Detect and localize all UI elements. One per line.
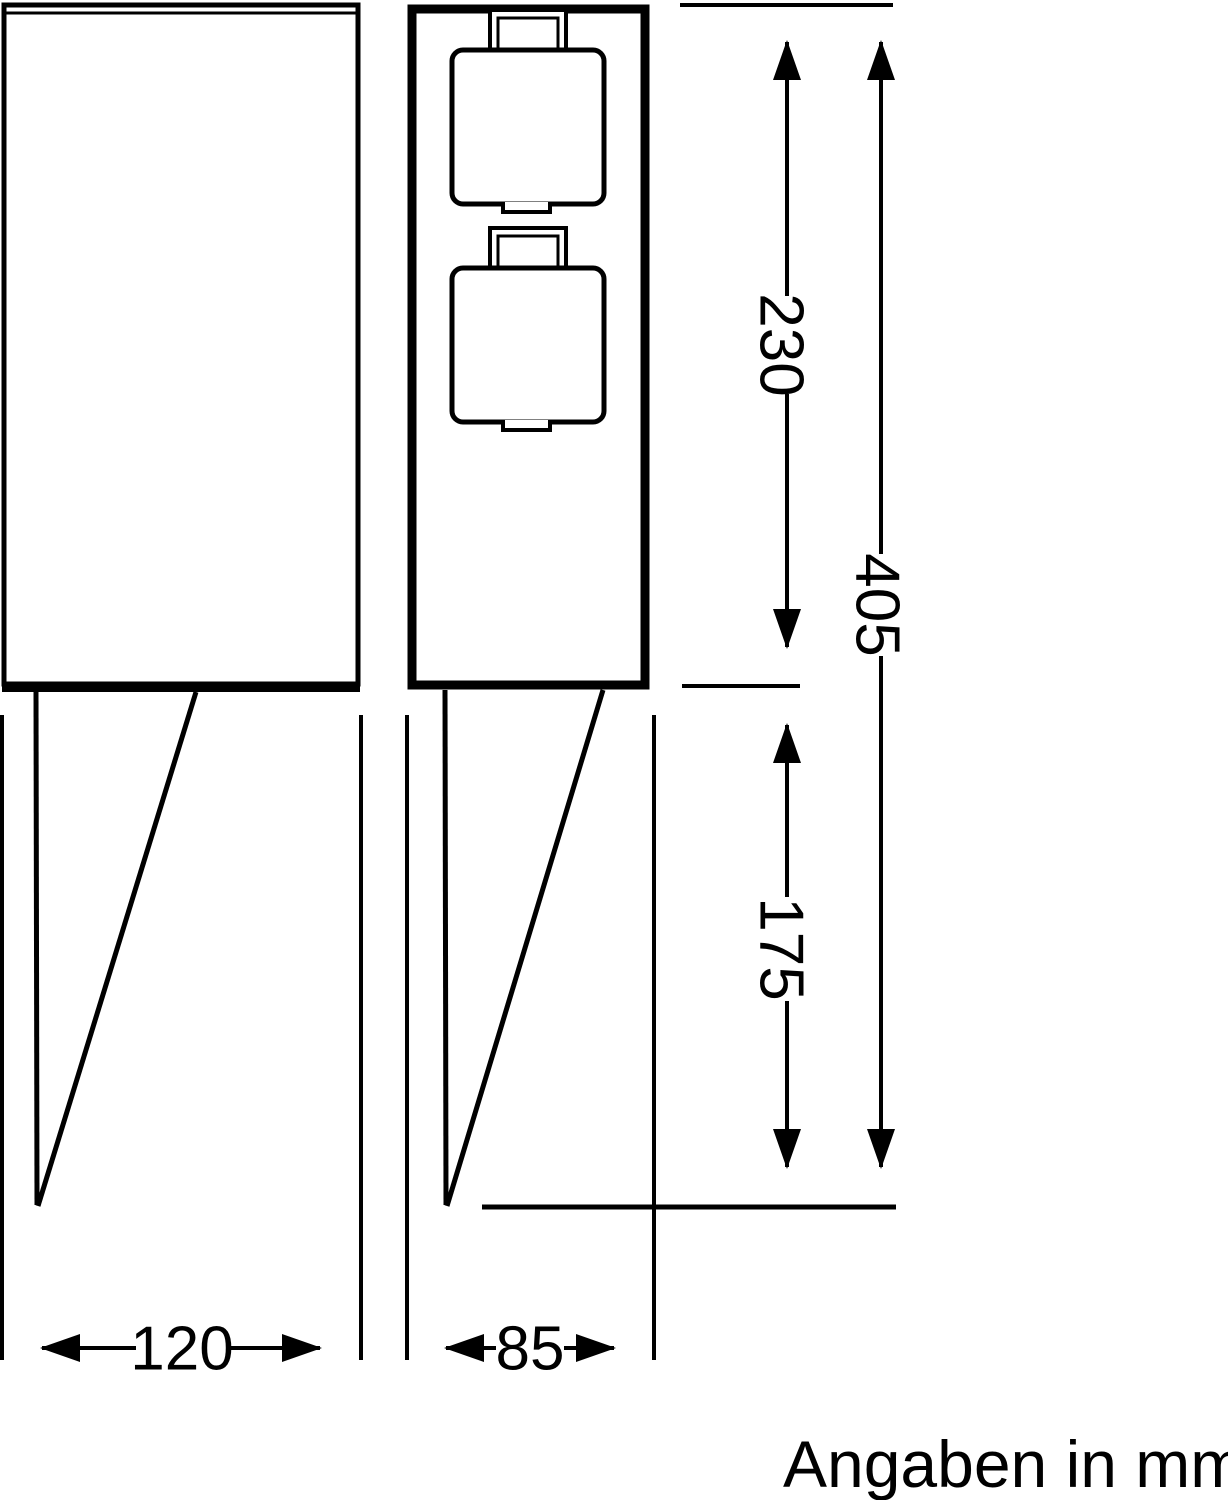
dimension-side-width: 85 xyxy=(444,1315,616,1384)
side-spike-diagonal-edge xyxy=(447,690,603,1206)
dim-230-arrow-down-icon xyxy=(773,609,801,649)
dim-405-arrow-up-icon xyxy=(867,40,895,80)
technical-drawing-canvas: 230 405 175 120 85 Angaben in mm xyxy=(0,0,1228,1500)
dim-230-arrow-up-icon xyxy=(773,40,801,80)
dim-175-arrow-up-icon xyxy=(773,723,801,763)
dimension-spike-height: 175 xyxy=(747,723,816,1169)
dimension-enclosure-height: 230 xyxy=(747,40,816,649)
dim-120-arrow-right-icon xyxy=(282,1334,322,1362)
dim-175-arrow-down-icon xyxy=(773,1129,801,1169)
socket-bottom-latch xyxy=(503,420,550,430)
front-view-body-outline xyxy=(4,5,358,684)
dim-85-arrow-right-icon xyxy=(576,1334,616,1362)
front-view xyxy=(2,5,360,1206)
front-spike-diagonal-edge xyxy=(38,692,196,1206)
dim-label-85: 85 xyxy=(496,1315,565,1384)
dim-label-175: 175 xyxy=(747,897,816,1000)
drawing-svg: 230 405 175 120 85 Angaben in mm xyxy=(0,0,1228,1500)
side-view xyxy=(412,9,645,1206)
dim-85-arrow-left-icon xyxy=(444,1334,484,1362)
socket-top-hinge-inner xyxy=(498,18,558,52)
socket-bottom-lid xyxy=(452,268,604,422)
socket-top-lid xyxy=(452,50,604,204)
dim-label-120: 120 xyxy=(130,1315,233,1384)
side-spike-left-edge xyxy=(445,690,446,1205)
dim-label-405: 405 xyxy=(843,553,912,656)
units-note: Angaben in mm xyxy=(783,1427,1228,1500)
socket-top-latch xyxy=(503,202,550,212)
dim-405-arrow-down-icon xyxy=(867,1129,895,1169)
front-spike-left-edge xyxy=(36,692,37,1205)
socket-bottom-hinge-inner xyxy=(498,236,558,270)
dim-label-230: 230 xyxy=(747,293,816,396)
dim-120-arrow-left-icon xyxy=(40,1334,80,1362)
dimension-total-height: 405 xyxy=(843,40,912,1169)
dimension-front-width: 120 xyxy=(40,1315,322,1384)
